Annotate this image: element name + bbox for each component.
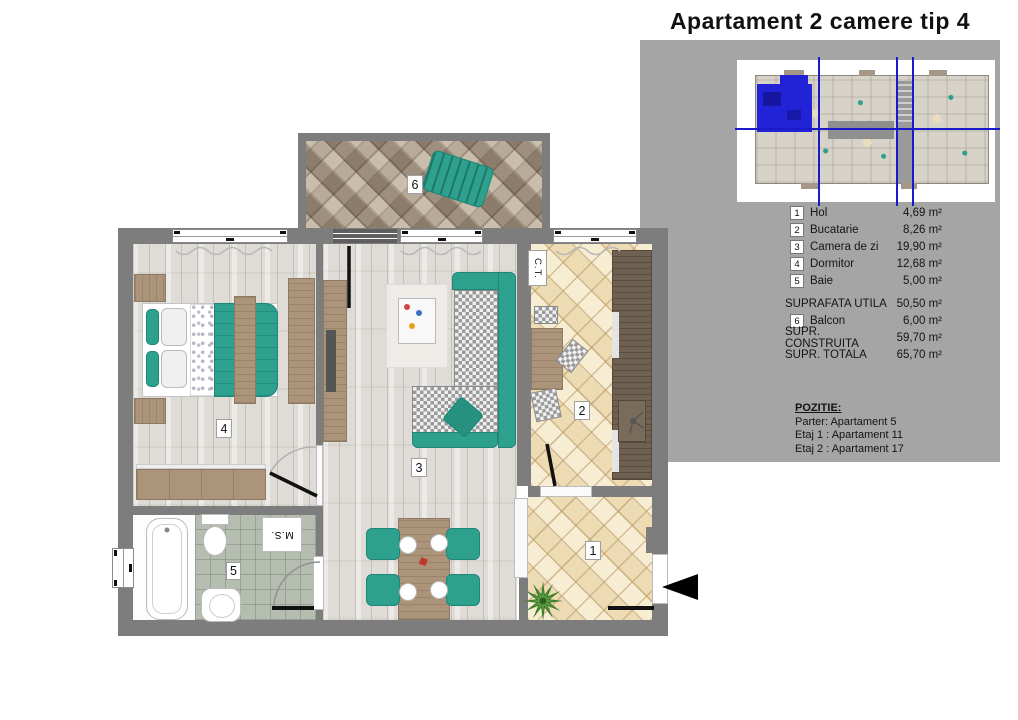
room-label-hol: 1 bbox=[585, 541, 601, 560]
room-label-dormitor: 4 bbox=[216, 419, 232, 438]
boiler-label: C.T. bbox=[528, 250, 547, 286]
room-label-balcon: 6 bbox=[407, 175, 423, 194]
room-label-baie: 5 bbox=[226, 562, 241, 580]
room-label-camera-de-zi: 3 bbox=[411, 458, 427, 477]
room-label-bucatarie: 2 bbox=[574, 401, 590, 420]
curtain-lines bbox=[0, 0, 1018, 720]
apartment-floorplan-page: Apartament 2 camere tip 4 bbox=[0, 0, 1018, 720]
